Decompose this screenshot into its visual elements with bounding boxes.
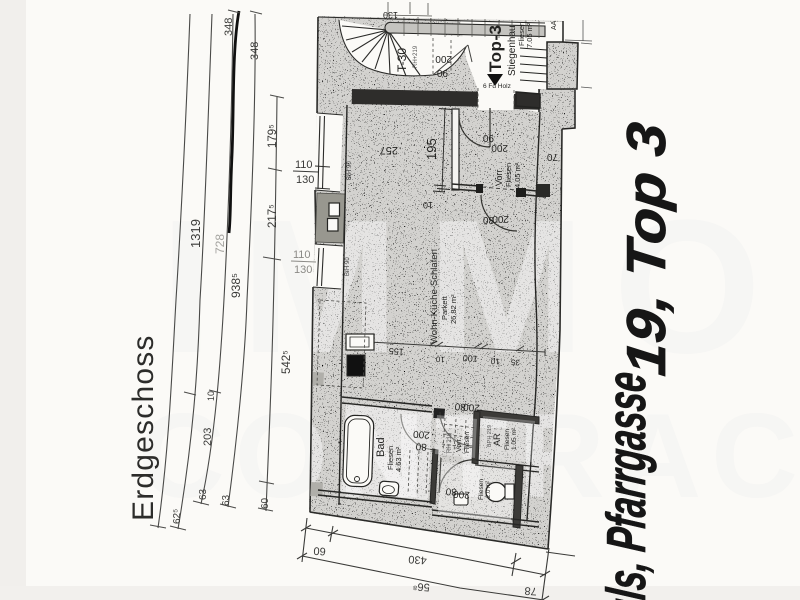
svg-text:80: 80 — [415, 440, 427, 452]
svg-text:4.05 m²: 4.05 m² — [513, 162, 522, 188]
svg-text:10: 10 — [423, 200, 433, 210]
svg-text:130: 130 — [294, 264, 312, 276]
svg-text:35: 35 — [510, 357, 520, 367]
svg-text:BPH 219: BPH 219 — [487, 425, 493, 447]
svg-text:RH 219: RH 219 — [447, 432, 453, 453]
svg-text:90: 90 — [436, 67, 448, 78]
svg-text:110: 110 — [293, 249, 311, 261]
svg-text:130: 130 — [296, 174, 314, 186]
svg-text:938⁵: 938⁵ — [229, 273, 243, 298]
svg-text:AA: AA — [551, 20, 558, 30]
svg-text:63: 63 — [221, 494, 232, 506]
svg-text:179⁵: 179⁵ — [267, 124, 279, 148]
svg-text:1319: 1319 — [188, 219, 203, 248]
svg-text:6 Fd Holz: 6 Fd Holz — [483, 83, 511, 90]
svg-text:155: 155 — [388, 346, 404, 357]
svg-text:Erdgeschoss: Erdgeschoss — [127, 334, 160, 521]
svg-text:200: 200 — [452, 488, 470, 500]
svg-text:63: 63 — [198, 488, 209, 500]
svg-text:Vorr.: Vorr. — [456, 438, 463, 452]
svg-text:Fliesen: Fliesen — [504, 163, 513, 187]
svg-text:203: 203 — [202, 428, 214, 446]
svg-text:RH+219: RH+219 — [413, 45, 419, 68]
svg-text:200: 200 — [462, 401, 480, 413]
svg-text:257: 257 — [380, 144, 398, 156]
svg-text:BrH 90: BrH 90 — [347, 161, 353, 180]
svg-text:80: 80 — [482, 214, 494, 225]
svg-text:1.05 m²: 1.05 m² — [511, 427, 518, 450]
svg-text:348: 348 — [223, 18, 235, 36]
svg-text:uls, Pfarrgasse: uls, Pfarrgasse — [595, 369, 657, 600]
svg-text:100: 100 — [462, 353, 478, 364]
svg-text:348: 348 — [249, 42, 261, 60]
svg-text:70: 70 — [546, 151, 558, 162]
svg-text:T-30: T-30 — [395, 48, 409, 72]
svg-text:60: 60 — [313, 544, 326, 557]
svg-text:10: 10 — [435, 354, 445, 364]
svg-text:BrH 90: BrH 90 — [345, 257, 351, 276]
svg-text:Wohn-Küche-Schlafen: Wohn-Küche-Schlafen — [429, 249, 440, 344]
svg-text:56⁸: 56⁸ — [413, 580, 431, 593]
svg-text:728: 728 — [213, 234, 227, 254]
svg-text:195: 195 — [424, 138, 439, 160]
svg-text:Top-3: Top-3 — [486, 24, 505, 72]
svg-text:10: 10 — [206, 391, 216, 401]
svg-text:430: 430 — [408, 553, 427, 566]
svg-text:Fliesen: Fliesen — [504, 429, 511, 450]
svg-text:217⁵: 217⁵ — [267, 204, 279, 228]
svg-text:19, Top 3: 19, Top 3 — [615, 119, 677, 378]
svg-text:Vorr.: Vorr. — [494, 167, 504, 186]
svg-text:78: 78 — [524, 584, 537, 597]
svg-text:62⁵: 62⁵ — [172, 509, 183, 524]
svg-text:200: 200 — [412, 428, 430, 440]
svg-text:26.82 m²: 26.82 m² — [449, 294, 458, 324]
svg-text:AR: AR — [492, 433, 502, 446]
svg-text:110: 110 — [295, 159, 313, 171]
svg-text:542⁵: 542⁵ — [281, 350, 293, 374]
svg-text:200: 200 — [435, 53, 452, 64]
svg-text:60: 60 — [260, 497, 271, 509]
svg-text:4.63 m²: 4.63 m² — [394, 446, 403, 472]
svg-text:Parkett: Parkett — [440, 295, 449, 320]
svg-text:Fliesen: Fliesen — [464, 432, 471, 453]
svg-text:2.0 m²: 2.0 m² — [486, 481, 492, 498]
svg-text:90: 90 — [482, 132, 494, 143]
svg-text:10: 10 — [490, 356, 500, 366]
svg-text:7.05 m²: 7.05 m² — [525, 22, 534, 48]
svg-text:Fliesen: Fliesen — [478, 479, 485, 500]
svg-text:200: 200 — [492, 213, 509, 224]
